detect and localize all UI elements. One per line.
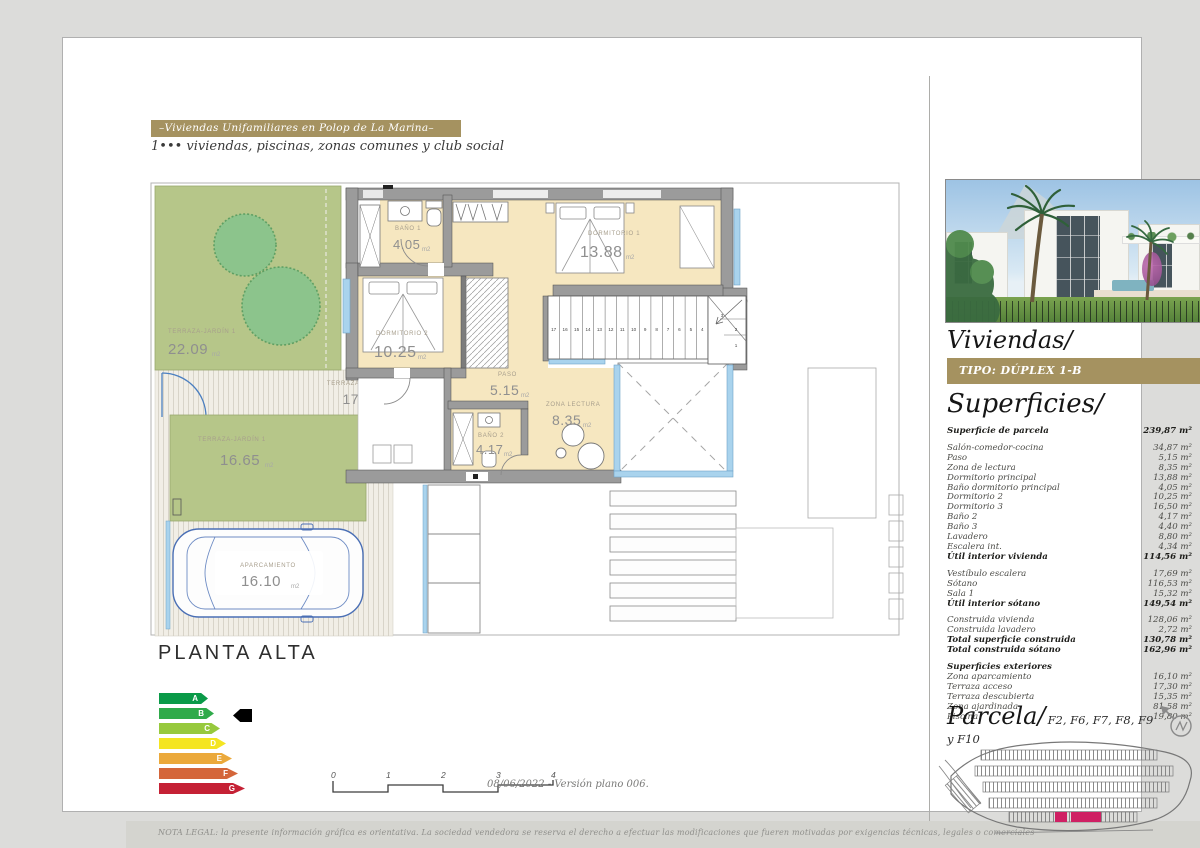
utility-room: [358, 378, 446, 475]
energy-grade-row: A: [159, 693, 379, 708]
surface-label: Superficie de parcela: [947, 427, 1049, 437]
svg-text:4.05: 4.05: [393, 237, 420, 252]
parcela-title: Parcela/: [947, 702, 1046, 730]
svg-text:m2: m2: [265, 463, 274, 469]
energy-grade-bar: C: [159, 723, 220, 734]
bed-dormitorio-1: [546, 203, 634, 273]
svg-text:16.10: 16.10: [241, 573, 281, 590]
drawing-sheet: –Viviendas Unifamiliares en Polop de La …: [62, 37, 1142, 812]
svg-text:10.25: 10.25: [374, 344, 417, 361]
wardrobe-top: [453, 202, 508, 222]
svg-text:m2: m2: [583, 423, 592, 429]
svg-text:1: 1: [386, 771, 391, 780]
svg-text:m2: m2: [504, 452, 513, 458]
energy-grade-row: D: [159, 738, 379, 753]
svg-text:8.35: 8.35: [552, 412, 581, 428]
energy-grade-row: C: [159, 723, 379, 738]
svg-text:m2: m2: [291, 584, 300, 590]
wardrobe-dormitorio-2: [466, 278, 508, 368]
tipo-duplex-bar: TIPO: DÚPLEX 1-B: [947, 358, 1200, 384]
svg-text:ZONA LECTURA: ZONA LECTURA: [546, 402, 600, 408]
surface-value: 239,87 m²: [1143, 427, 1192, 437]
energy-grade-letter: F: [223, 769, 228, 778]
site-plan-map: [937, 736, 1200, 838]
svg-text:m2: m2: [422, 247, 431, 253]
surface-row: Superficie de parcela 239,87 m²: [947, 427, 1192, 437]
pergola-slats: [610, 491, 736, 621]
svg-text:0: 0: [331, 771, 336, 780]
svg-text:13: 13: [597, 327, 603, 332]
svg-text:m2: m2: [626, 255, 635, 261]
svg-text:TERRAZA-JARDÍN 1: TERRAZA-JARDÍN 1: [198, 436, 266, 443]
surface-row: Sala 1 15,32 m²: [947, 590, 1192, 600]
energy-grade-row: B: [159, 708, 379, 723]
svg-text:14: 14: [585, 327, 591, 332]
svg-text:15: 15: [574, 327, 580, 332]
svg-text:17: 17: [551, 327, 557, 332]
svg-text:APARCAMIENTO: APARCAMIENTO: [240, 563, 296, 569]
svg-text:22.09: 22.09: [168, 341, 208, 358]
svg-text:12: 12: [608, 327, 614, 332]
energy-grade-letter: E: [217, 754, 222, 763]
svg-text:7: 7: [667, 327, 670, 332]
parking-space: APARCAMIENTO 16.10 m2: [166, 521, 363, 629]
stair-winder: 3 2 1: [708, 296, 746, 364]
energy-grade-letter: D: [210, 739, 216, 748]
surface-row: Dormitorio 3 16,50 m²: [947, 503, 1192, 513]
highlighted-parcel: [1055, 812, 1067, 822]
energy-grade-letter: G: [229, 784, 235, 793]
garden-terrace-2: TERRAZA-JARDÍN 1 16.65 m2: [170, 415, 366, 521]
svg-text:11: 11: [620, 327, 625, 332]
svg-text:9: 9: [644, 327, 647, 332]
svg-text:16.65: 16.65: [220, 452, 260, 469]
svg-text:2: 2: [440, 771, 446, 780]
pergola-ladder: [423, 485, 480, 633]
parcel-rows: [945, 750, 1173, 822]
energy-grade-bar: B: [159, 708, 214, 719]
surface-value: 15,32 m²: [1153, 590, 1192, 600]
floor-title: PLANTA ALTA: [158, 642, 318, 665]
surface-row: Baño 2 4,17 m²: [947, 513, 1192, 523]
sidebar-divider: [929, 76, 930, 821]
project-title-bar: –Viviendas Unifamiliares en Polop de La …: [151, 120, 461, 137]
energy-grade-letter: C: [204, 724, 210, 733]
lower-roof-outlines: [736, 368, 903, 619]
svg-text:4: 4: [701, 327, 704, 332]
svg-text:10: 10: [631, 327, 637, 332]
tree-icon: [214, 214, 276, 276]
surface-value: 162,96 m²: [1143, 646, 1192, 656]
bed-dormitorio-2: [363, 278, 443, 352]
surface-label: Útil interior sótano: [947, 600, 1040, 610]
tree-icon: [242, 267, 320, 345]
svg-text:TERRAZA-JARDÍN 1: TERRAZA-JARDÍN 1: [168, 328, 236, 335]
svg-text:6: 6: [678, 327, 681, 332]
energy-grade-bar: A: [159, 693, 208, 704]
svg-text:8: 8: [655, 327, 658, 332]
surfaces-table: Superficie de parcela 239,87 m² Salón-co…: [947, 427, 1192, 722]
surface-row: Salón-comedor-cocina 34,87 m²: [947, 444, 1192, 454]
garden-terrace-1: TERRAZA-JARDÍN 1 22.09 m2: [155, 186, 341, 370]
surface-label: Total construida sótano: [947, 646, 1061, 656]
surface-value: 114,56 m²: [1143, 553, 1192, 563]
energy-grade-bar: E: [159, 753, 232, 764]
svg-text:13.88: 13.88: [580, 244, 623, 261]
drawing-sheet-page: –Viviendas Unifamiliares en Polop de La …: [0, 0, 1200, 848]
surface-row: Útil interior vivienda 114,56 m²: [947, 553, 1192, 563]
superficies-title: Superficies/: [947, 389, 1104, 419]
energy-grade-bar: G: [159, 783, 245, 794]
viviendas-title: Viviendas/: [947, 326, 1073, 354]
svg-text:4.17: 4.17: [476, 442, 503, 457]
render-photo: [945, 179, 1200, 323]
svg-text:DORMITORIO 2: DORMITORIO 2: [376, 331, 428, 337]
svg-text:1: 1: [735, 343, 738, 348]
project-subtitle: 1••• viviendas, piscinas, zonas comunes …: [151, 139, 504, 154]
parking-gate: [166, 521, 170, 629]
svg-text:5.15: 5.15: [490, 382, 519, 398]
svg-text:BAÑO 2: BAÑO 2: [478, 432, 504, 439]
svg-text:5: 5: [690, 327, 693, 332]
svg-text:DORMITORIO 1: DORMITORIO 1: [588, 231, 640, 237]
energy-grade-bar: D: [159, 738, 226, 749]
floor-plan: TERRAZA-JARDÍN 1 22.09 m2 TERRAZA ACCESO…: [148, 173, 908, 641]
legal-note-text: NOTA LEGAL: la presente información gráf…: [158, 828, 1035, 837]
surface-value: 149,54 m²: [1143, 600, 1192, 610]
energy-grade-letter: B: [198, 709, 204, 718]
svg-text:m2: m2: [521, 393, 530, 399]
surface-row: Útil interior sótano 149,54 m²: [947, 600, 1192, 610]
surface-label: Sala 1: [947, 590, 974, 600]
svg-text:16: 16: [563, 327, 569, 332]
svg-text:m2: m2: [418, 355, 427, 361]
svg-text:m2: m2: [212, 352, 221, 358]
highlighted-parcel: [1071, 812, 1101, 822]
version-note: 08/06/2022 - Versión plano 006.: [487, 779, 649, 790]
energy-grade-row: E: [159, 753, 379, 768]
svg-text:2: 2: [735, 327, 738, 332]
double-height-void: [618, 363, 728, 473]
energy-grade-letter: A: [192, 694, 198, 703]
surface-label: Útil interior vivienda: [947, 553, 1048, 563]
surface-row: Total construida sótano 162,96 m²: [947, 646, 1192, 656]
energy-grade-bar: F: [159, 768, 238, 779]
svg-text:PASO: PASO: [498, 372, 517, 378]
palm-trees-icon: [946, 180, 1200, 322]
staircase: 17 16 15 14 13 12 11 10 9 8 7 6 5 4 3 2 …: [548, 296, 746, 364]
svg-text:BAÑO 1: BAÑO 1: [395, 225, 421, 232]
